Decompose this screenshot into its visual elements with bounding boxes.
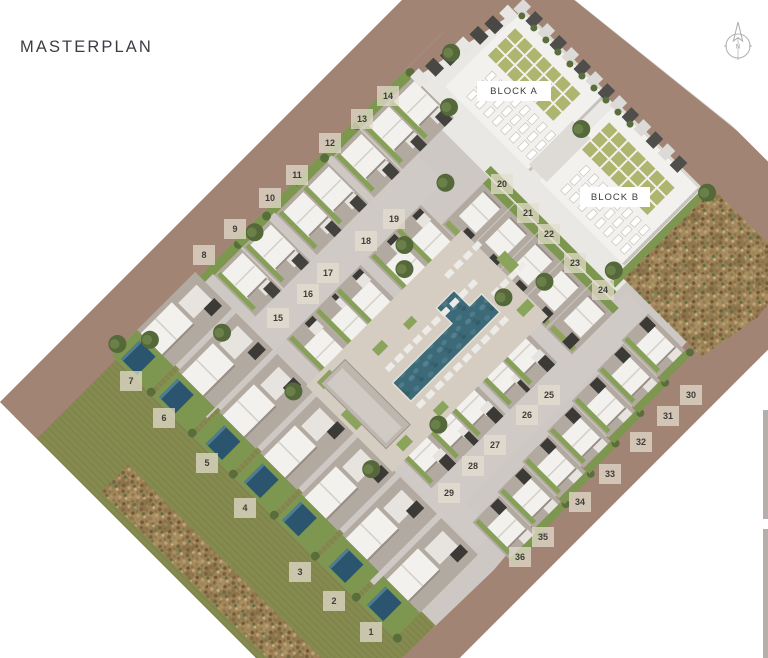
svg-text:N: N (736, 44, 741, 51)
